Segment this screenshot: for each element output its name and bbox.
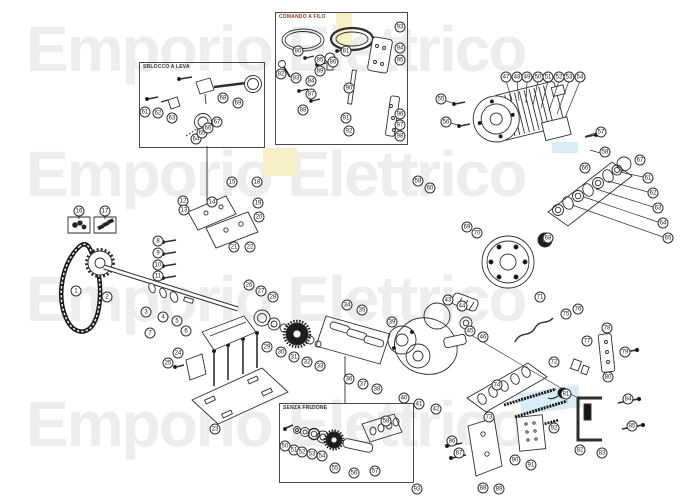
- lower-washer-band: [467, 363, 547, 412]
- seal-nut-band: [548, 157, 663, 237]
- boxed-fastener-parts: [68, 214, 116, 233]
- inset-box-cable-release: COMANDO A FILO: [275, 12, 408, 145]
- clutch-shafts: [316, 316, 390, 403]
- upper-bracket: [161, 146, 258, 280]
- inset-box-clutchless: SENZA FRIZIONE: [279, 403, 414, 483]
- inset-label: SENZA FRIZIONE: [283, 406, 327, 411]
- base-plate: [174, 316, 289, 424]
- exploded-diagram-page: Emporio ElettricoEmporio ElettricoEmpori…: [0, 0, 694, 500]
- inset-box-lever-release: SBLOCCO A LEVA: [139, 62, 265, 148]
- electric-motor: [468, 79, 575, 157]
- output-flange: [482, 233, 552, 288]
- inset-label: COMANDO A FILO: [279, 15, 326, 20]
- gearbox-housing: [388, 292, 479, 374]
- center-gear-cluster: [254, 310, 321, 347]
- inset-label: SBLOCCO A LEVA: [143, 65, 190, 70]
- right-plates: [445, 333, 644, 476]
- rods-and-spring: [466, 318, 576, 427]
